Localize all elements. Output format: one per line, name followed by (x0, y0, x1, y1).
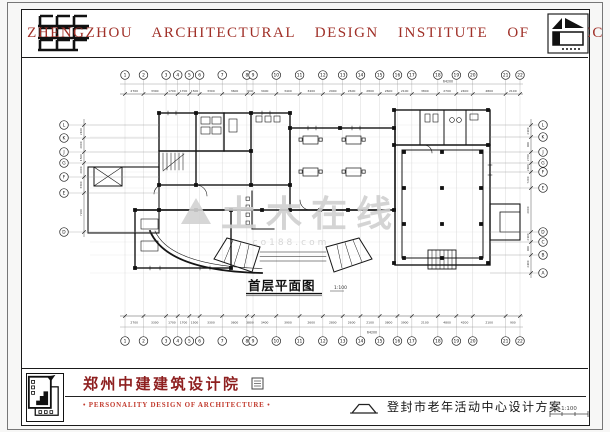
svg-text:C: C (541, 240, 544, 246)
footer-divider-line (65, 396, 586, 397)
svg-text:3300: 3300 (151, 320, 159, 324)
svg-text:A: A (541, 271, 544, 277)
svg-text:19: 19 (454, 73, 460, 79)
svg-text:64200: 64200 (367, 330, 377, 334)
svg-text:4800: 4800 (443, 320, 451, 324)
title-block-footer: 郑州中建建筑设计院 • PERSONALITY DESIGN OF ARCHIT… (21, 368, 588, 425)
svg-text:3300: 3300 (151, 89, 159, 93)
svg-text:3800: 3800 (246, 320, 254, 324)
svg-text:2400: 2400 (526, 260, 530, 267)
plan-title: 首层平面图 (248, 278, 316, 293)
svg-text:12: 12 (320, 339, 326, 345)
svg-text:14: 14 (358, 73, 364, 79)
plan-title-block: 首层平面图 1:100 (246, 278, 347, 296)
svg-text:3: 3 (165, 73, 168, 79)
svg-text:4: 4 (176, 339, 179, 345)
svg-text:3: 3 (165, 339, 168, 345)
svg-text:7: 7 (221, 339, 224, 345)
svg-text:21: 21 (503, 339, 509, 345)
svg-text:12: 12 (320, 73, 326, 79)
svg-text:3800: 3800 (385, 320, 393, 324)
svg-text:K: K (542, 135, 545, 141)
svg-text:3300: 3300 (207, 320, 215, 324)
svg-text:3400: 3400 (261, 320, 269, 324)
svg-text:900: 900 (526, 142, 530, 148)
drawing-sheet: ZHENGZHOU ARCHITECTURAL DESIGN INSTITUTE… (0, 0, 610, 432)
svg-text:2: 2 (142, 339, 145, 345)
svg-text:1700: 1700 (168, 320, 176, 324)
svg-text:15: 15 (377, 339, 383, 345)
svg-text:16: 16 (395, 73, 401, 79)
floor-plan-drawing: 1234567891011121314151617181920212227003… (21, 57, 588, 368)
svg-text:4200: 4200 (461, 320, 469, 324)
svg-text:3400: 3400 (307, 89, 315, 93)
institute-name-english: ZHENGZHOU ARCHITECTURAL DESIGN INSTITUTE… (99, 9, 532, 57)
svg-text:17: 17 (409, 339, 415, 345)
svg-text:6: 6 (198, 73, 201, 79)
svg-text:19: 19 (454, 339, 460, 345)
svg-text:2900: 2900 (329, 89, 337, 93)
svg-text:3900: 3900 (401, 320, 409, 324)
svg-text:17: 17 (409, 73, 415, 79)
svg-text:22: 22 (517, 73, 523, 79)
svg-text:900: 900 (510, 320, 516, 324)
svg-text:2100: 2100 (401, 89, 409, 93)
svg-text:11: 11 (297, 339, 303, 345)
floor-plan-linework (88, 108, 520, 273)
svg-text:8: 8 (245, 73, 248, 79)
svg-text:2100: 2100 (509, 89, 517, 93)
svg-text:2100: 2100 (526, 233, 530, 240)
svg-text:J: J (541, 150, 543, 156)
svg-text:1500: 1500 (191, 320, 199, 324)
scale-label: 1:100 (561, 406, 577, 412)
svg-text:2600: 2600 (348, 89, 356, 93)
svg-text:1: 1 (124, 73, 127, 79)
svg-text:20: 20 (470, 73, 476, 79)
svg-text:8: 8 (245, 339, 248, 345)
svg-text:2600: 2600 (385, 89, 393, 93)
svg-text:4800: 4800 (485, 89, 493, 93)
svg-text:900: 900 (526, 246, 530, 252)
svg-text:J: J (62, 150, 64, 156)
svg-text:7200: 7200 (79, 209, 83, 216)
svg-text:13: 13 (340, 73, 346, 79)
svg-text:E: E (63, 191, 66, 197)
svg-text:9: 9 (252, 339, 255, 345)
svg-text:4: 4 (176, 73, 179, 79)
svg-text:3400: 3400 (284, 89, 292, 93)
svg-text:2000: 2000 (526, 206, 530, 213)
project-title: 登封市老年活动中心设计方案 (387, 398, 563, 415)
svg-text:2400: 2400 (461, 89, 469, 93)
svg-text:3600: 3600 (231, 320, 239, 324)
svg-text:2600: 2600 (307, 320, 315, 324)
svg-text:2800: 2800 (366, 89, 374, 93)
svg-text:2100: 2100 (485, 320, 493, 324)
svg-text:1700: 1700 (168, 89, 176, 93)
scale-bar: 1:100 (548, 404, 590, 418)
svg-text:E: E (542, 186, 545, 192)
svg-text:16: 16 (395, 339, 401, 345)
svg-text:13: 13 (340, 339, 346, 345)
plan-scale: 1:100 (334, 285, 347, 291)
svg-text:2: 2 (142, 73, 145, 79)
svg-text:2600: 2600 (348, 320, 356, 324)
svg-text:9: 9 (252, 73, 255, 79)
svg-text:2000: 2000 (79, 166, 83, 173)
institute-slogan: • PERSONALITY DESIGN OF ARCHITECTURE • (83, 401, 270, 409)
svg-text:900: 900 (247, 89, 253, 93)
svg-text:14: 14 (358, 339, 364, 345)
svg-text:2800: 2800 (329, 320, 337, 324)
svg-text:3400: 3400 (261, 89, 269, 93)
svg-text:3800: 3800 (421, 89, 429, 93)
svg-text:3300: 3300 (79, 181, 83, 188)
svg-text:3600: 3600 (231, 89, 239, 93)
column-markers (133, 108, 490, 270)
svg-text:G: G (62, 161, 66, 167)
registration-seal-icon (251, 377, 264, 390)
svg-text:2700: 2700 (526, 154, 530, 161)
svg-text:5: 5 (188, 73, 191, 79)
svg-text:18: 18 (435, 73, 441, 79)
axis-bubbles-and-dimensions: 1234567891011121314151617181920212227003… (60, 71, 548, 346)
svg-text:2100: 2100 (421, 320, 429, 324)
svg-text:2100: 2100 (79, 128, 83, 135)
svg-text:2700: 2700 (130, 89, 138, 93)
svg-text:21: 21 (503, 73, 509, 79)
svg-text:3900: 3900 (284, 320, 292, 324)
svg-text:K: K (63, 136, 66, 142)
svg-text:1500: 1500 (79, 154, 83, 161)
svg-text:G: G (541, 161, 545, 167)
svg-text:15: 15 (377, 73, 383, 79)
svg-text:3300: 3300 (207, 89, 215, 93)
svg-text:10: 10 (273, 73, 279, 79)
institute-name-chinese: 郑州中建建筑设计院 (83, 373, 241, 394)
institute-seal-icon (27, 374, 60, 418)
svg-text:20: 20 (470, 339, 476, 345)
institute-seal-box (26, 373, 64, 422)
svg-text:2700: 2700 (130, 320, 138, 324)
svg-text:7200: 7200 (526, 176, 530, 183)
house-icon (349, 400, 379, 416)
svg-text:18: 18 (435, 339, 441, 345)
svg-text:2100: 2100 (526, 127, 530, 134)
svg-text:7: 7 (221, 73, 224, 79)
svg-text:5: 5 (188, 339, 191, 345)
svg-text:2700: 2700 (443, 89, 451, 93)
svg-text:B: B (541, 253, 544, 259)
svg-text:2000: 2000 (79, 141, 83, 148)
sheet-header: ZHENGZHOU ARCHITECTURAL DESIGN INSTITUTE… (21, 9, 588, 58)
svg-text:1500: 1500 (191, 89, 199, 93)
svg-text:1: 1 (124, 339, 127, 345)
svg-text:2100: 2100 (366, 320, 374, 324)
svg-text:1700: 1700 (180, 89, 188, 93)
svg-text:64200: 64200 (443, 80, 453, 84)
svg-text:1700: 1700 (180, 320, 188, 324)
institute-stamp-icon (547, 13, 589, 54)
svg-text:10: 10 (273, 339, 279, 345)
svg-text:6: 6 (198, 339, 201, 345)
svg-text:11: 11 (297, 73, 303, 79)
svg-text:2400: 2400 (526, 164, 530, 171)
svg-text:22: 22 (517, 339, 523, 345)
